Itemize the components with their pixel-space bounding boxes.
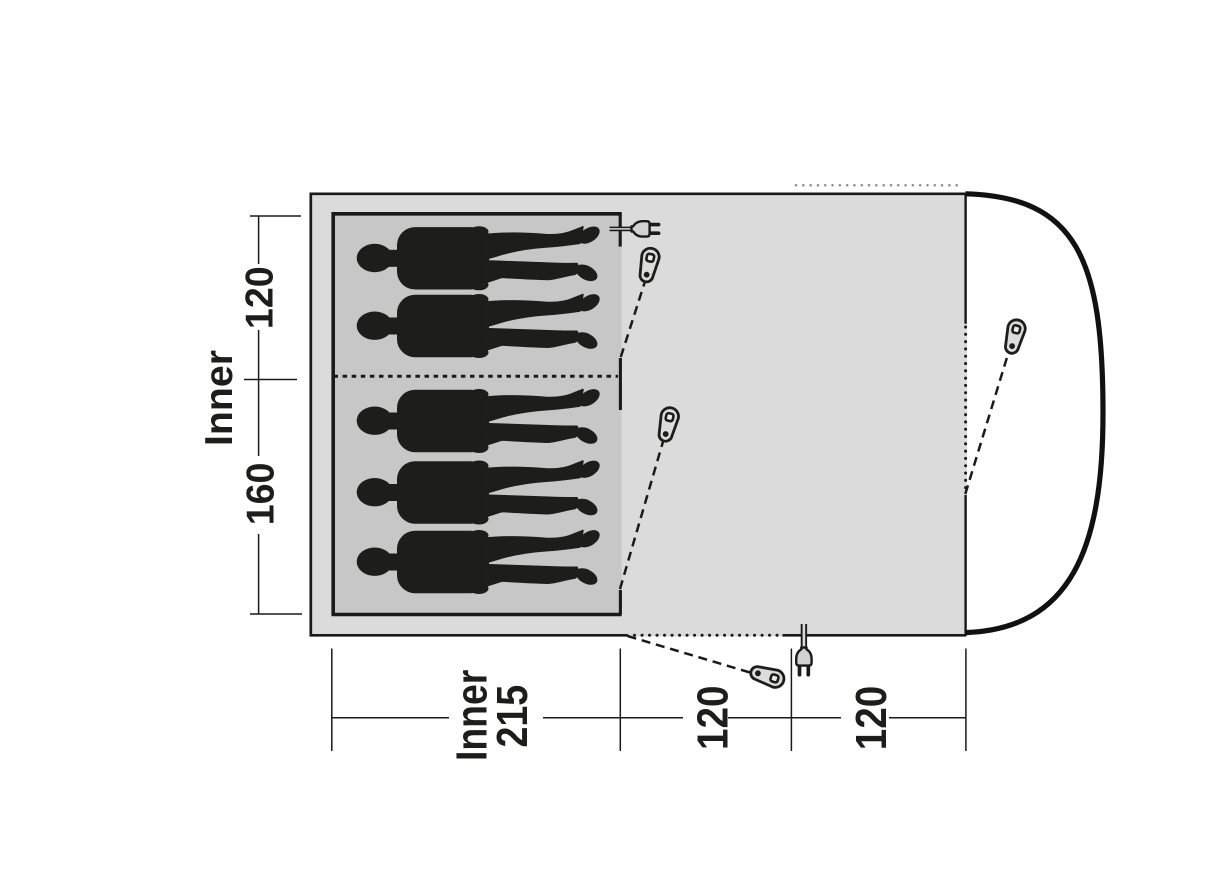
svg-text:120: 120 [847, 686, 896, 751]
svg-text:160: 160 [240, 463, 282, 526]
svg-text:120: 120 [688, 685, 737, 750]
svg-text:215: 215 [487, 685, 536, 748]
svg-text:120: 120 [239, 266, 281, 329]
svg-text:Inner: Inner [198, 350, 241, 446]
